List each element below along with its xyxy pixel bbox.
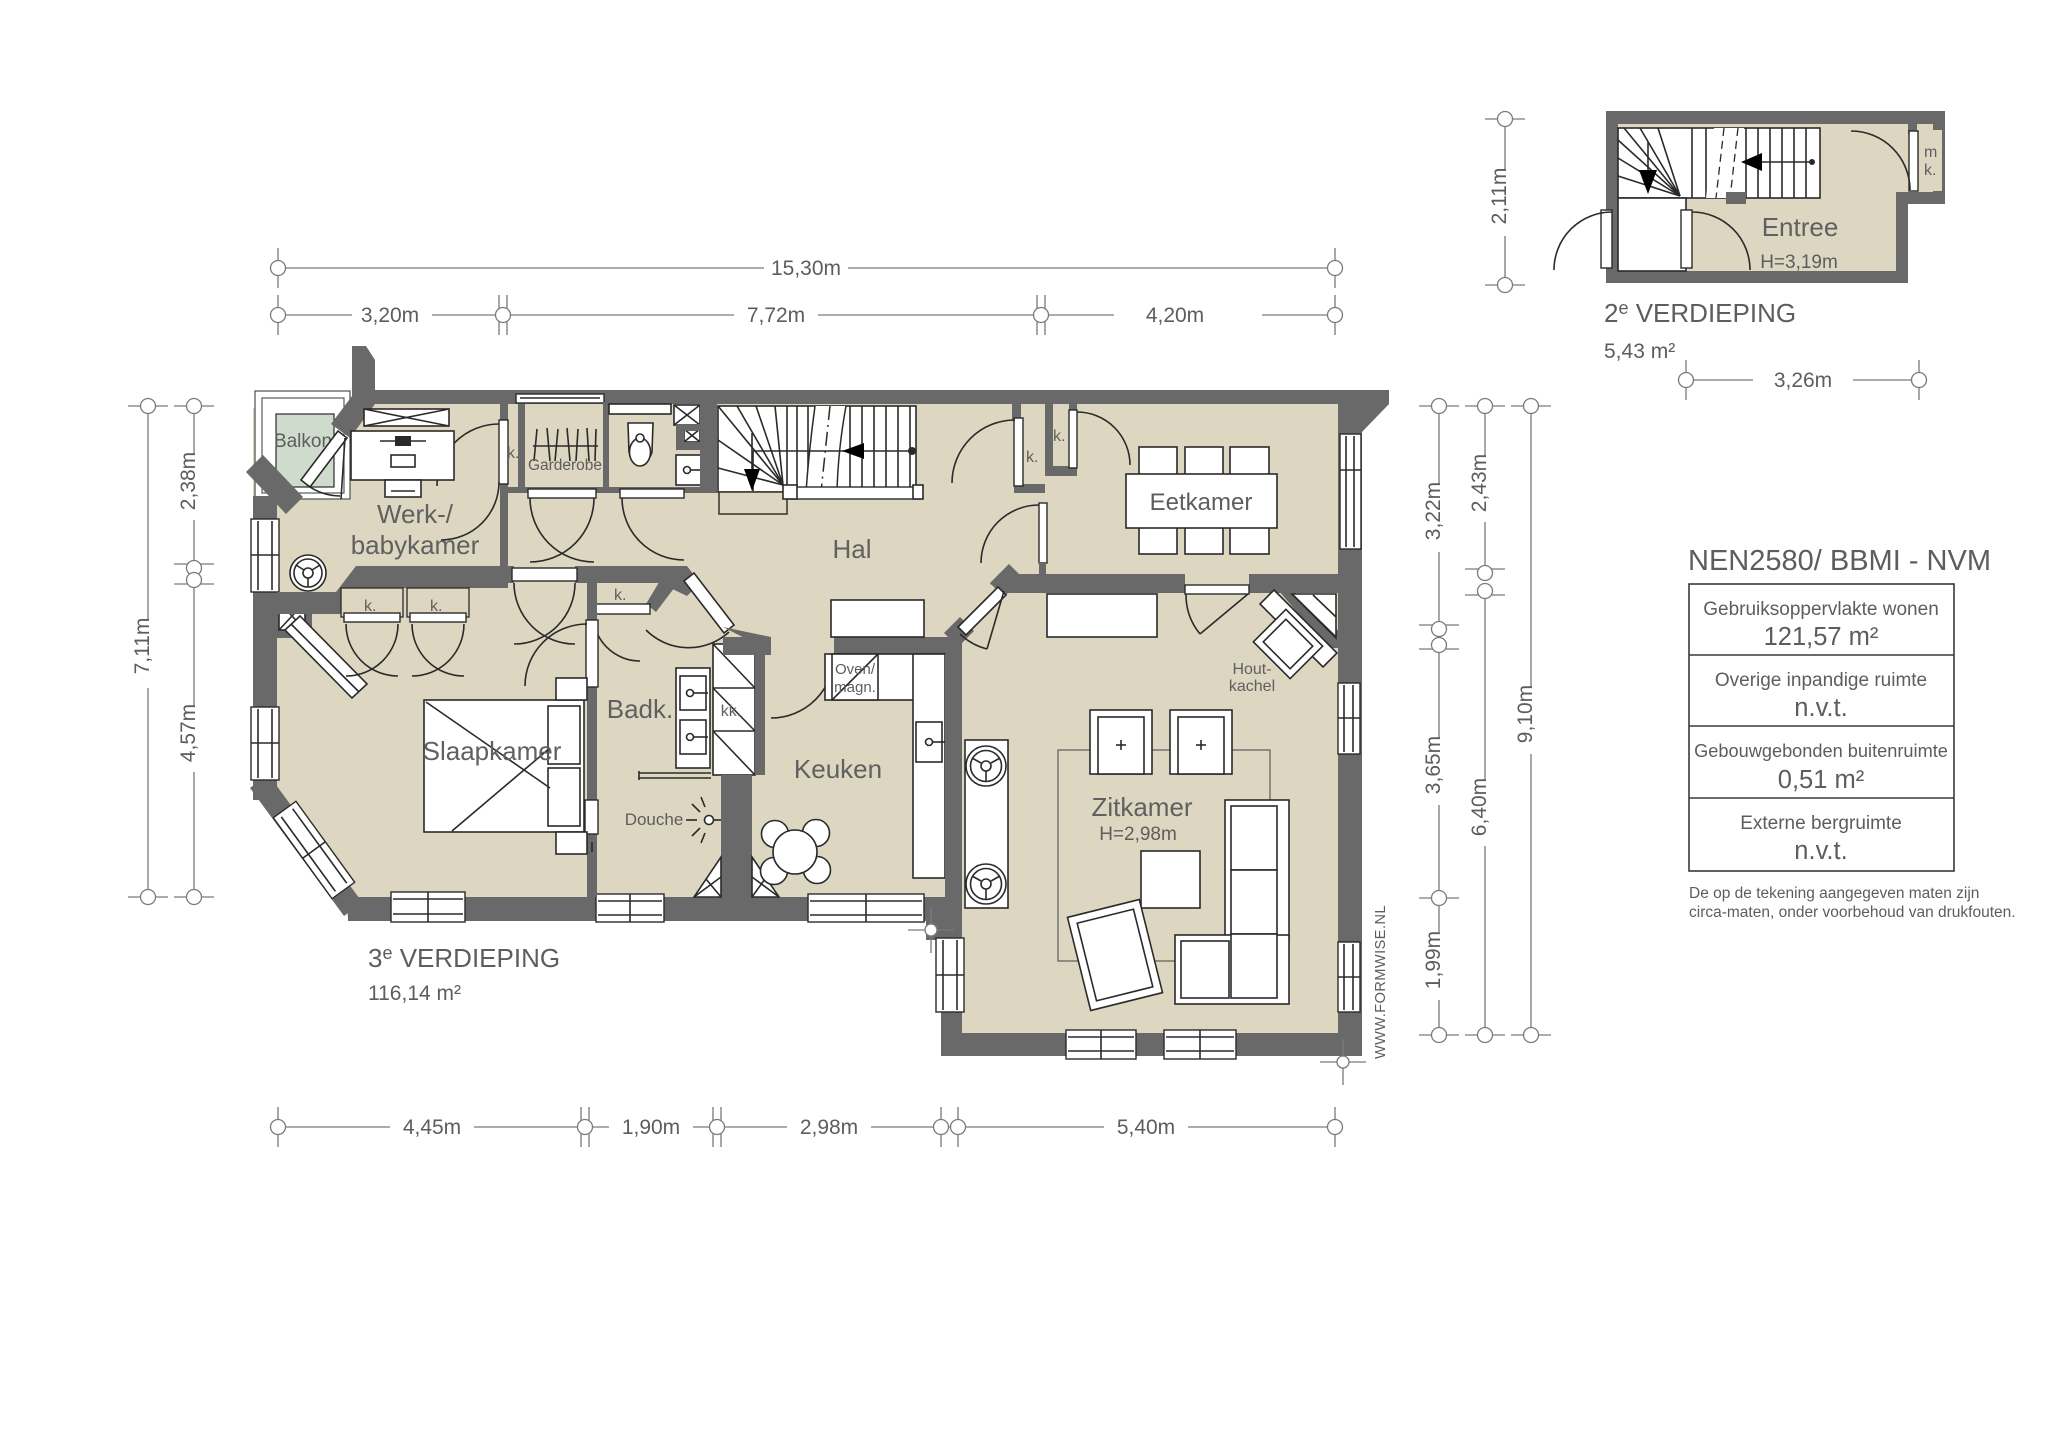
svg-text:15,30m: 15,30m bbox=[771, 257, 841, 280]
svg-text:magn.: magn. bbox=[834, 679, 876, 696]
svg-text:Slaapkamer: Slaapkamer bbox=[423, 736, 562, 766]
svg-text:k.: k. bbox=[614, 587, 626, 604]
svg-text:Externe bergruimte: Externe bergruimte bbox=[1740, 813, 1902, 834]
svg-text:3,22m: 3,22m bbox=[1422, 482, 1445, 540]
svg-text:2,38m: 2,38m bbox=[177, 452, 200, 510]
svg-text:k.: k. bbox=[1026, 449, 1038, 466]
svg-text:k.: k. bbox=[507, 445, 519, 462]
svg-text:kachel: kachel bbox=[1229, 678, 1275, 695]
svg-text:Douche: Douche bbox=[625, 810, 684, 829]
svg-text:k.: k. bbox=[1924, 162, 1936, 179]
svg-text:9,10m: 9,10m bbox=[1514, 685, 1537, 743]
svg-text:Badk.: Badk. bbox=[607, 694, 674, 724]
svg-text:Gebouwgebonden buitenruimte: Gebouwgebonden buitenruimte bbox=[1694, 741, 1948, 761]
svg-text:116,14 m²: 116,14 m² bbox=[368, 982, 461, 1005]
svg-text:Eetkamer: Eetkamer bbox=[1150, 489, 1253, 516]
svg-text:babykamer: babykamer bbox=[351, 530, 480, 560]
svg-text:Zitkamer: Zitkamer bbox=[1091, 792, 1192, 822]
svg-text:3e VERDIEPING: 3e VERDIEPING bbox=[368, 943, 560, 973]
svg-text:Oven/: Oven/ bbox=[835, 661, 876, 678]
svg-text:1,90m: 1,90m bbox=[622, 1116, 680, 1139]
svg-text:Balkon: Balkon bbox=[274, 431, 332, 452]
svg-text:n.v.t.: n.v.t. bbox=[1794, 694, 1847, 722]
svg-text:k.: k. bbox=[364, 598, 376, 615]
svg-text:Hal: Hal bbox=[832, 534, 871, 564]
svg-text:Entree: Entree bbox=[1762, 212, 1839, 242]
svg-text:1,99m: 1,99m bbox=[1422, 931, 1445, 989]
svg-text:7,72m: 7,72m bbox=[747, 304, 805, 327]
svg-text:NEN2580/ BBMI - NVM: NEN2580/ BBMI - NVM bbox=[1688, 545, 1991, 577]
svg-text:De op de tekening aangegev: De op de tekening aangegeven maten zijn bbox=[1689, 885, 1979, 902]
svg-text:H=2,98m: H=2,98m bbox=[1099, 824, 1177, 845]
svg-text:4,20m: 4,20m bbox=[1146, 304, 1204, 327]
svg-text:m: m bbox=[1924, 144, 1937, 161]
svg-text:kk.: kk. bbox=[721, 703, 741, 720]
svg-text:2e VERDIEPING: 2e VERDIEPING bbox=[1604, 298, 1796, 328]
svg-text:k.: k. bbox=[430, 598, 442, 615]
svg-text:n.v.t.: n.v.t. bbox=[1794, 837, 1847, 865]
svg-text:Keuken: Keuken bbox=[794, 754, 882, 784]
svg-text:0,51 m²: 0,51 m² bbox=[1778, 766, 1864, 794]
svg-text:3,65m: 3,65m bbox=[1422, 736, 1445, 794]
svg-text:2,98m: 2,98m bbox=[800, 1116, 858, 1139]
svg-text:121,57 m²: 121,57 m² bbox=[1764, 623, 1879, 651]
svg-text:2,43m: 2,43m bbox=[1468, 454, 1491, 512]
svg-text:3,20m: 3,20m bbox=[361, 304, 419, 327]
svg-text:2,11m: 2,11m bbox=[1488, 168, 1511, 225]
svg-text:Gebruiksoppervlakte wonen: Gebruiksoppervlakte wonen bbox=[1703, 599, 1939, 620]
svg-text:4,45m: 4,45m bbox=[403, 1116, 461, 1139]
svg-text:Overige inpandige ruimte: Overige inpandige ruimte bbox=[1715, 670, 1927, 691]
svg-text:5,40m: 5,40m bbox=[1117, 1116, 1175, 1139]
svg-text:Garderobe: Garderobe bbox=[528, 457, 602, 474]
svg-text:4,57m: 4,57m bbox=[177, 704, 200, 762]
svg-text:k.: k. bbox=[1053, 428, 1065, 445]
svg-text:WWW.FORMWISE.NL: WWW.FORMWISE.NL bbox=[1373, 905, 1389, 1059]
svg-text:Hout-: Hout- bbox=[1232, 661, 1271, 678]
svg-text:Werk-/: Werk-/ bbox=[377, 499, 454, 529]
svg-text:H=3,19m: H=3,19m bbox=[1760, 252, 1838, 273]
svg-text:7,11m: 7,11m bbox=[131, 618, 154, 675]
svg-text:circa-maten, onder voorbehoud: circa-maten, onder voorbehoud van drukfo… bbox=[1689, 904, 2016, 921]
svg-text:6,40m: 6,40m bbox=[1468, 778, 1491, 836]
svg-text:5,43 m²: 5,43 m² bbox=[1604, 340, 1675, 363]
svg-text:3,26m: 3,26m bbox=[1774, 369, 1832, 392]
